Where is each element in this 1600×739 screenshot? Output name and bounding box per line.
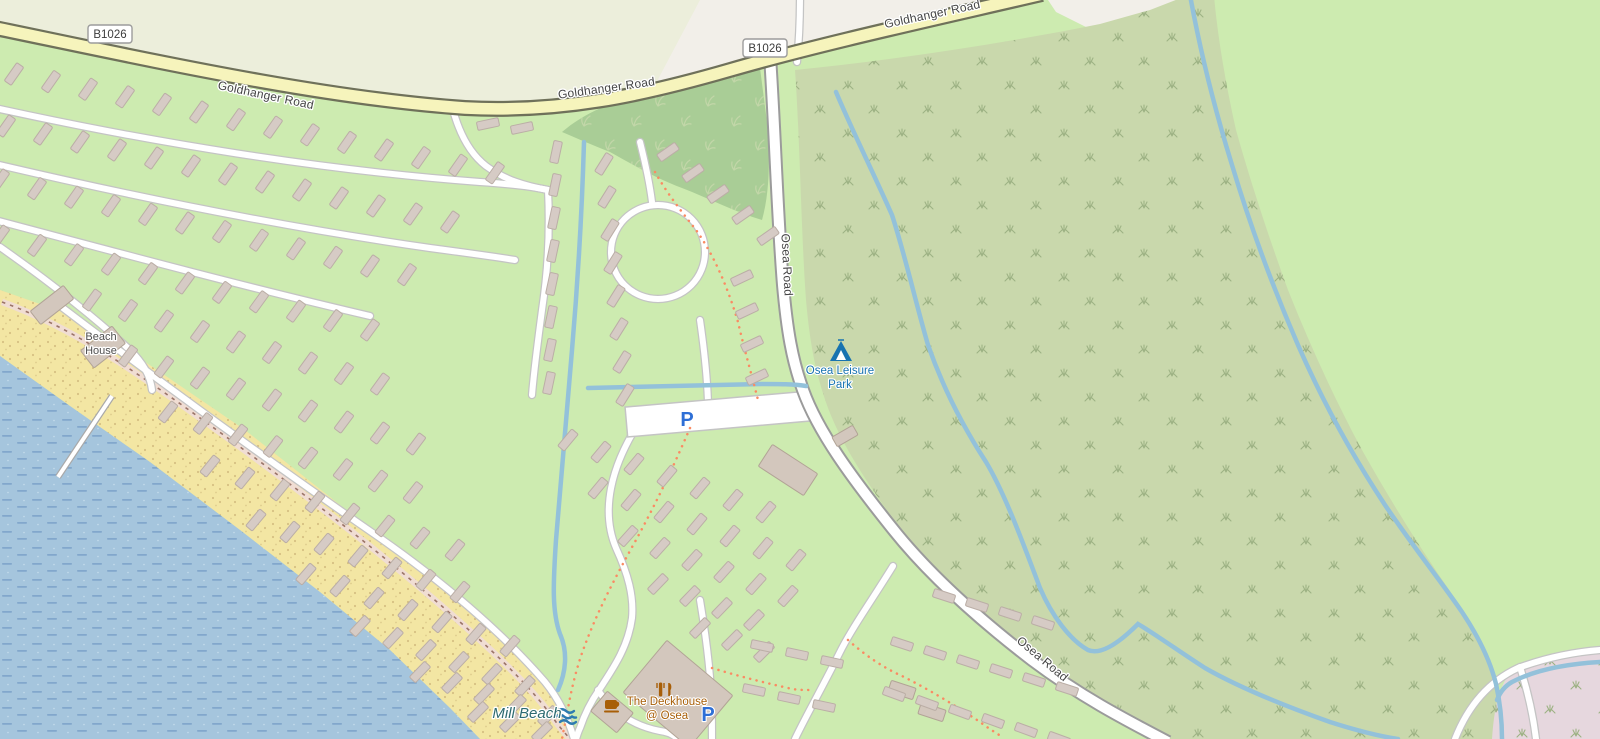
beach-house-label-line2: House [85,345,117,357]
cafe-icon [604,700,619,713]
svg-text:B1026: B1026 [93,29,126,41]
osea-leisure-park-label-line1: Osea Leisure [806,365,874,377]
deckhouse-label-line2: @ Osea [646,710,689,722]
svg-text:B1026: B1026 [748,43,781,55]
mill-beach-label: Mill Beach [492,705,561,722]
route-badge-b1026-mid: B1026 [743,39,787,57]
deckhouse-label-line1: The Deckhouse [627,696,708,708]
map-viewport[interactable]: P P B1026 B1026 Goldhanger Road Goldhang… [0,0,1600,739]
beach-house-label-line1: Beach [85,331,116,343]
parking-icon-north: P [680,409,693,431]
osea-leisure-park-label-line2: Park [828,379,852,391]
route-badge-b1026-west: B1026 [88,25,132,43]
